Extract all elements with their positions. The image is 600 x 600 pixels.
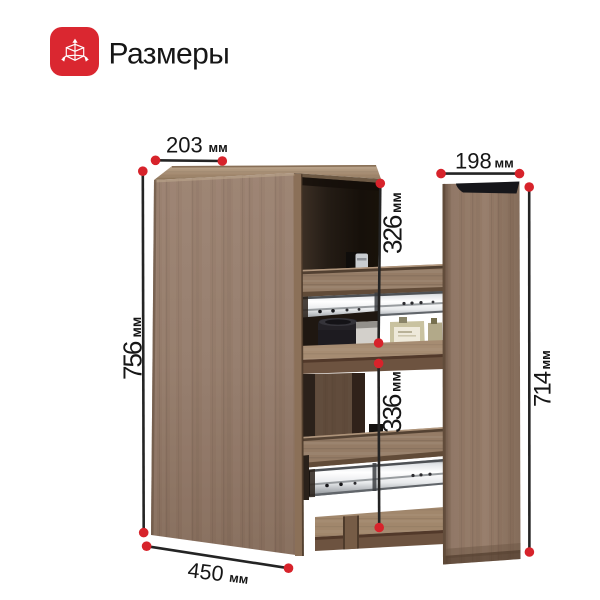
svg-text:мм: мм	[228, 570, 249, 587]
svg-text:мм: мм	[388, 371, 404, 392]
svg-text:450: 450	[186, 558, 225, 586]
svg-text:мм: мм	[538, 350, 553, 369]
svg-text:мм: мм	[128, 317, 144, 338]
svg-text:мм: мм	[495, 156, 514, 171]
svg-text:203: 203	[166, 133, 203, 158]
svg-text:мм: мм	[209, 140, 228, 155]
svg-text:714: 714	[530, 371, 557, 407]
svg-text:756: 756	[118, 341, 148, 380]
svg-text:198: 198	[455, 148, 492, 173]
svg-text:Размеры: Размеры	[109, 38, 230, 71]
svg-text:мм: мм	[388, 192, 404, 213]
svg-text:336: 336	[377, 394, 407, 433]
svg-text:326: 326	[378, 215, 408, 254]
